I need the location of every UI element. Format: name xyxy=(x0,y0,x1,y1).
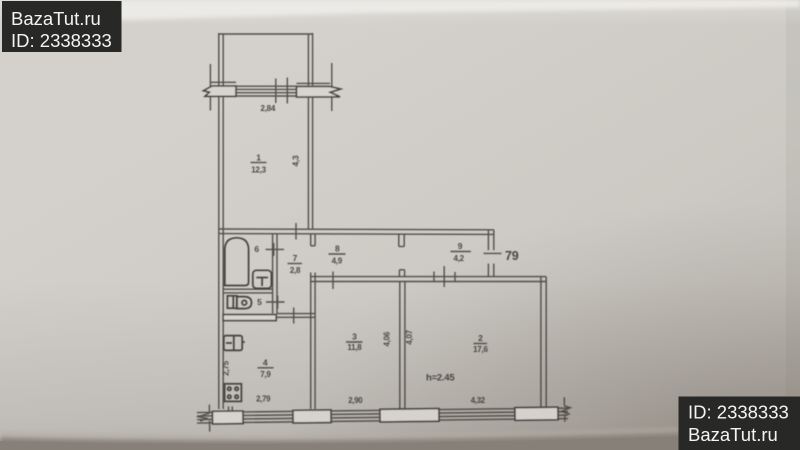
svg-text:4: 4 xyxy=(263,357,268,367)
svg-text:BazaTut.ru: BazaTut.ru xyxy=(688,424,778,445)
svg-text:ID: 2338333: ID: 2338333 xyxy=(11,30,112,51)
svg-text:6: 6 xyxy=(254,244,259,254)
svg-text:2,75: 2,75 xyxy=(222,360,231,375)
svg-text:9: 9 xyxy=(458,241,463,251)
svg-text:2,8: 2,8 xyxy=(290,266,301,275)
svg-text:1: 1 xyxy=(256,153,261,163)
svg-text:79: 79 xyxy=(505,249,519,263)
svg-text:17,6: 17,6 xyxy=(473,345,488,354)
svg-text:4,07: 4,07 xyxy=(405,329,414,344)
svg-text:8: 8 xyxy=(335,244,340,254)
svg-text:4,32: 4,32 xyxy=(471,396,486,405)
svg-text:BazaTut.ru: BazaTut.ru xyxy=(11,8,101,29)
svg-text:4,9: 4,9 xyxy=(332,257,343,266)
svg-text:2,79: 2,79 xyxy=(256,395,271,404)
svg-text:4,2: 4,2 xyxy=(454,254,465,263)
svg-text:7: 7 xyxy=(293,253,298,263)
svg-text:ID: 2338333: ID: 2338333 xyxy=(688,402,789,423)
svg-text:2,84: 2,84 xyxy=(261,104,276,113)
svg-text:h=2.45: h=2.45 xyxy=(426,373,455,384)
svg-text:2,90: 2,90 xyxy=(348,396,363,405)
svg-text:12,3: 12,3 xyxy=(251,166,266,175)
svg-text:11,8: 11,8 xyxy=(347,343,362,352)
svg-text:7,9: 7,9 xyxy=(260,370,271,379)
svg-text:5: 5 xyxy=(257,297,262,307)
svg-text:4,3: 4,3 xyxy=(290,155,300,167)
svg-text:3: 3 xyxy=(352,332,357,342)
svg-text:4,06: 4,06 xyxy=(382,331,391,346)
svg-text:2: 2 xyxy=(478,333,483,343)
